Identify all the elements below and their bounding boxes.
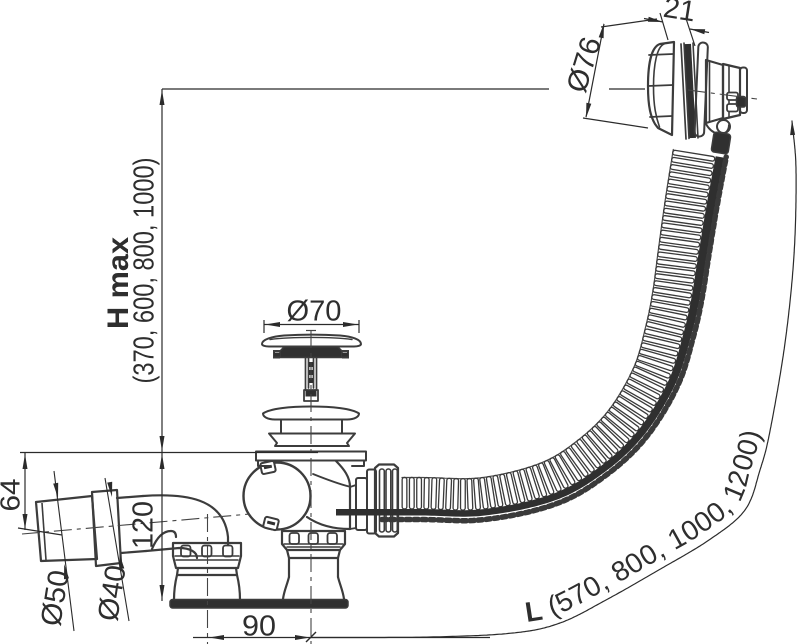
svg-text:21: 21 bbox=[661, 0, 698, 28]
svg-text:90: 90 bbox=[242, 611, 276, 643]
svg-text:64: 64 bbox=[0, 479, 26, 512]
svg-text:(370, 600, 800, 1000): (370, 600, 800, 1000) bbox=[129, 158, 161, 384]
svg-text:120: 120 bbox=[128, 501, 160, 549]
svg-text:Ø70: Ø70 bbox=[287, 296, 342, 328]
